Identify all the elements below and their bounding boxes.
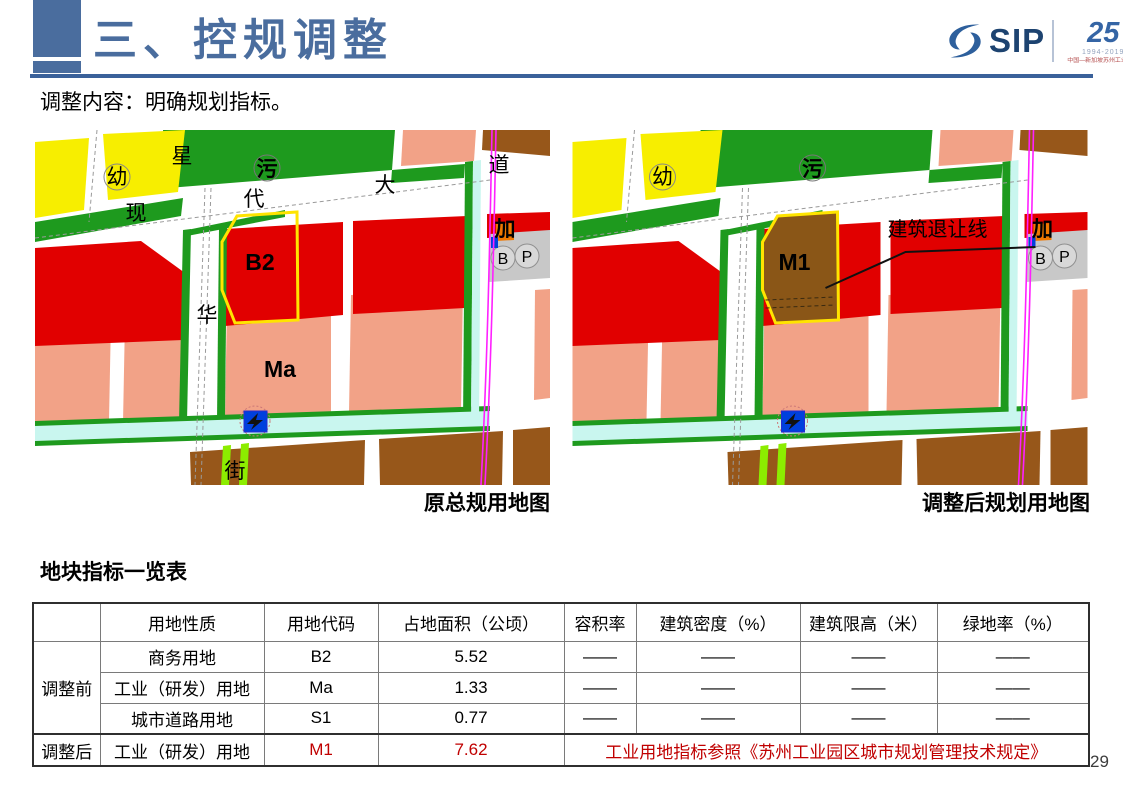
map-original-plan: 星 幼 污 现 代 大 道 B2 加 B P 华 Ma 街 [35,130,550,485]
cell-area: 0.77 [378,703,564,734]
cell-code: Ma [264,672,378,703]
parcel-ma-label: Ma [264,356,296,382]
col-header-far: 容积率 [564,603,636,641]
table-row: 工业（研发）用地 Ma 1.33 —— —— —— —— [33,672,1089,703]
cell-area: 1.33 [378,672,564,703]
group-label-after: 调整后 [33,734,100,766]
anniversary-org: 中国—新加坡苏州工业园区 [1068,57,1123,63]
parcel-b2-label: B2 [245,249,274,275]
cell-code-m1: M1 [264,734,378,766]
industrial-indicator-note: 工业用地指标参照《苏州工业园区城市规划管理技术规定》 [564,734,1089,766]
cell-far: —— [564,703,636,734]
road-label-xing: 星 [172,145,193,168]
cell-density: —— [636,641,800,672]
road-label-dai: 代 [244,188,265,211]
sip-logo-text: SIP [989,22,1045,60]
table-row-adjusted: 调整后 工业（研发）用地 M1 7.62 工业用地指标参照《苏州工业园区城市规划… [33,734,1089,766]
anniversary-mark: 25 1994-2019 中国—新加坡苏州工业园区 [1061,19,1123,64]
sip-swirl-icon [948,23,982,59]
sewage-plant-label: 污 [802,158,823,181]
col-header-density: 建筑密度（%） [636,603,800,641]
kindergarten-label: 幼 [652,166,673,189]
title-decoration-bar [33,61,81,73]
cell-code: S1 [264,703,378,734]
bus-stop-label: B [1035,251,1046,268]
anniversary-number: 25 [1087,19,1119,48]
title-decoration-square [33,0,81,57]
col-header-blank [33,603,100,641]
page-number: 29 [1090,752,1109,772]
setback-label: 建筑退让线 [888,218,988,241]
cell-area-m1: 7.62 [378,734,564,766]
cell-nature: 工业（研发）用地 [100,734,264,766]
road-label-jie: 街 [225,460,246,483]
road-label-hua: 华 [197,304,218,327]
sewage-plant-label: 污 [257,158,278,181]
table-header-row: 用地性质 用地代码 占地面积（公顷） 容积率 建筑密度（%） 建筑限高（米） 绿… [33,603,1089,641]
sip-logo: SIP 25 1994-2019 中国—新加坡苏州工业园区 [948,14,1123,68]
cell-nature: 工业（研发）用地 [100,672,264,703]
cell-green: —— [937,641,1089,672]
logo-divider [1052,20,1054,62]
cell-density: —— [636,703,800,734]
map-adjusted-plan: 幼 污 M1 建筑退让线 加 B P [570,130,1090,485]
parking-label: P [522,249,533,266]
col-header-green: 绿地率（%） [937,603,1089,641]
col-header-code: 用地代码 [264,603,378,641]
cell-green: —— [937,672,1089,703]
parking-label: P [1059,249,1070,266]
gas-station-label: 加 [1031,218,1053,241]
cell-code: B2 [264,641,378,672]
cell-far: —— [564,672,636,703]
road-label-dao: 道 [489,154,510,177]
cell-nature: 城市道路用地 [100,703,264,734]
table-title: 地块指标一览表 [40,556,187,586]
cell-height: —— [800,641,937,672]
cell-area: 5.52 [378,641,564,672]
col-header-height: 建筑限高（米） [800,603,937,641]
parcel-m1-label: M1 [779,249,811,275]
group-label-before: 调整前 [33,641,100,734]
parcel-indicator-table: 用地性质 用地代码 占地面积（公顷） 容积率 建筑密度（%） 建筑限高（米） 绿… [32,602,1090,767]
cell-green: —— [937,703,1089,734]
bus-stop-label: B [498,251,509,268]
cell-height: —— [800,672,937,703]
page-title: 三、控规调整 [93,4,393,68]
road-label-xian: 现 [126,202,147,225]
kindergarten-label: 幼 [107,166,128,189]
adjustment-intro-text: 调整内容：明确规划指标。 [40,86,292,116]
cell-far: —— [564,641,636,672]
cell-height: —— [800,703,937,734]
table-row: 城市道路用地 S1 0.77 —— —— —— —— [33,703,1089,734]
cell-density: —— [636,672,800,703]
title-underline [30,74,1093,78]
col-header-nature: 用地性质 [100,603,264,641]
anniversary-years: 1994-2019 [1082,49,1123,56]
caption-original-map: 原总规用地图 [338,487,550,517]
cell-nature: 商务用地 [100,641,264,672]
table-row: 调整前 商务用地 B2 5.52 —— —— —— —— [33,641,1089,672]
gas-station-label: 加 [494,218,516,241]
col-header-area: 占地面积（公顷） [378,603,564,641]
road-label-da: 大 [375,174,396,197]
caption-adjusted-map: 调整后规划用地图 [878,487,1090,517]
